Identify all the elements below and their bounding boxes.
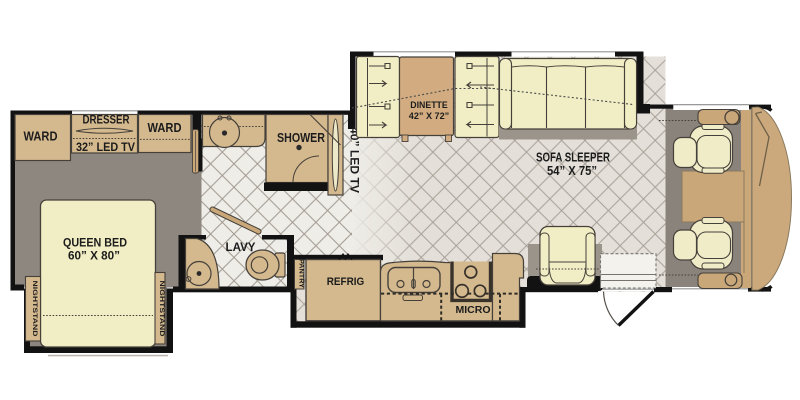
- svg-text:32” LED TV: 32” LED TV: [76, 141, 135, 154]
- svg-text:54” X 75”: 54” X 75”: [547, 163, 597, 178]
- svg-text:42” X 72”: 42” X 72”: [409, 111, 450, 121]
- svg-text:NIGHTSTAND: NIGHTSTAND: [31, 281, 38, 338]
- svg-text:60” X 80”: 60” X 80”: [68, 249, 120, 263]
- svg-text:DINETTE: DINETTE: [410, 100, 448, 110]
- svg-text:NIGHTSTAND: NIGHTSTAND: [158, 281, 165, 338]
- svg-text:PANTRY: PANTRY: [298, 259, 305, 288]
- svg-text:REFRIG: REFRIG: [327, 276, 365, 288]
- svg-text:QUEEN BED: QUEEN BED: [63, 236, 127, 250]
- svg-text:LAVY: LAVY: [226, 241, 256, 254]
- svg-text:SHOWER: SHOWER: [277, 131, 325, 145]
- svg-text:MICRO: MICRO: [456, 305, 491, 316]
- svg-text:WARD: WARD: [24, 130, 58, 144]
- svg-text:WARD: WARD: [148, 121, 182, 135]
- svg-text:DRESSER: DRESSER: [83, 113, 130, 127]
